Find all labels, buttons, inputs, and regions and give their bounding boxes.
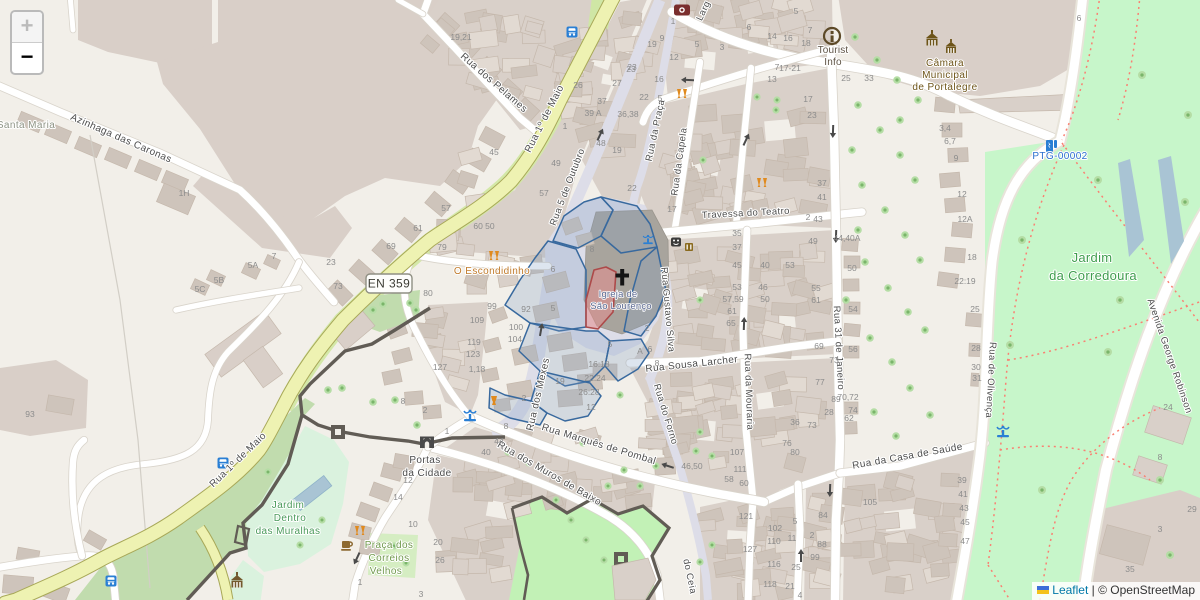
svg-text:12A: 12A	[957, 214, 972, 224]
svg-text:14: 14	[393, 492, 403, 502]
svg-text:111: 111	[734, 464, 747, 474]
svg-text:55: 55	[811, 283, 821, 293]
svg-text:20: 20	[433, 537, 443, 547]
svg-text:65: 65	[726, 318, 736, 328]
svg-text:Santa Maria: Santa Maria	[0, 120, 55, 131]
svg-text:23: 23	[326, 257, 336, 267]
svg-text:23: 23	[807, 110, 817, 120]
svg-text:Correios: Correios	[369, 553, 410, 564]
svg-text:48: 48	[596, 138, 606, 148]
svg-text:25: 25	[841, 73, 851, 83]
svg-text:Jardim: Jardim	[272, 500, 304, 511]
svg-text:109: 109	[470, 315, 484, 325]
svg-text:57: 57	[539, 188, 549, 198]
svg-text:24: 24	[1163, 402, 1173, 412]
svg-text:5: 5	[608, 339, 613, 349]
svg-text:19: 19	[555, 376, 565, 386]
svg-text:84: 84	[818, 510, 828, 520]
svg-text:5: 5	[793, 516, 798, 526]
svg-text:12: 12	[669, 52, 679, 62]
svg-text:49: 49	[808, 236, 818, 246]
svg-text:107: 107	[730, 447, 744, 457]
svg-text:17: 17	[803, 94, 813, 104]
svg-text:da Corredoura: da Corredoura	[1049, 268, 1137, 283]
svg-text:19: 19	[612, 145, 622, 155]
svg-text:54: 54	[848, 304, 858, 314]
svg-text:25: 25	[970, 304, 980, 314]
svg-text:46,50: 46,50	[681, 461, 703, 471]
svg-text:61: 61	[811, 295, 821, 305]
svg-text:121: 121	[739, 511, 753, 521]
svg-text:44,40A: 44,40A	[834, 233, 861, 243]
svg-text:53: 53	[785, 260, 795, 270]
svg-text:41: 41	[958, 489, 968, 499]
svg-text:50: 50	[847, 263, 857, 273]
svg-text:Câmara: Câmara	[926, 58, 964, 69]
svg-text:60 50: 60 50	[473, 221, 495, 231]
svg-text:37: 37	[732, 242, 742, 252]
svg-text:77: 77	[815, 377, 825, 387]
svg-text:73: 73	[807, 420, 817, 430]
svg-text:EN 359: EN 359	[368, 277, 410, 291]
svg-text:36: 36	[790, 417, 800, 427]
svg-text:18: 18	[967, 252, 977, 262]
svg-text:16:18: 16:18	[588, 359, 610, 369]
svg-text:5C: 5C	[195, 284, 206, 294]
svg-text:2: 2	[645, 323, 650, 333]
svg-text:80: 80	[423, 288, 433, 298]
svg-text:1: 1	[563, 121, 568, 131]
svg-text:127: 127	[433, 362, 447, 372]
svg-text:Portas: Portas	[409, 455, 440, 466]
svg-text:8: 8	[504, 421, 509, 431]
svg-text:45: 45	[732, 260, 742, 270]
svg-text:45: 45	[960, 517, 970, 527]
svg-text:39: 39	[957, 475, 967, 485]
svg-text:6: 6	[1077, 13, 1082, 23]
svg-text:5: 5	[695, 39, 700, 49]
svg-text:8: 8	[655, 358, 660, 368]
svg-text:99: 99	[487, 301, 497, 311]
svg-text:29: 29	[1187, 504, 1197, 514]
svg-text:19,21: 19,21	[450, 32, 472, 42]
svg-text:1,18: 1,18	[469, 364, 486, 374]
svg-text:A: A	[637, 346, 643, 356]
svg-text:26: 26	[435, 555, 445, 565]
svg-text:35: 35	[732, 228, 742, 238]
svg-text:7: 7	[775, 62, 780, 72]
svg-text:6,7: 6,7	[944, 136, 956, 146]
svg-text:9: 9	[660, 33, 665, 43]
svg-text:Tourist: Tourist	[818, 45, 849, 56]
svg-text:PTG-00002: PTG-00002	[1032, 151, 1087, 162]
svg-text:1: 1	[358, 577, 363, 587]
svg-text:58: 58	[724, 474, 734, 484]
svg-text:Info: Info	[824, 57, 842, 68]
svg-text:21: 21	[785, 581, 795, 591]
svg-text:46: 46	[758, 282, 768, 292]
svg-text:99: 99	[810, 552, 820, 562]
svg-text:6: 6	[747, 22, 752, 32]
svg-text:41: 41	[817, 192, 827, 202]
svg-text:45: 45	[489, 147, 499, 157]
svg-text:40: 40	[760, 260, 770, 270]
svg-text:22: 22	[639, 92, 649, 102]
svg-text:40: 40	[481, 447, 491, 457]
svg-text:Praça dos: Praça dos	[365, 540, 414, 551]
svg-text:22: 22	[627, 183, 637, 193]
svg-text:61: 61	[727, 306, 737, 316]
svg-text:50: 50	[760, 294, 770, 304]
svg-text:123: 123	[466, 349, 480, 359]
svg-text:118: 118	[763, 579, 777, 589]
svg-text:2: 2	[423, 405, 428, 415]
svg-text:5: 5	[658, 93, 663, 103]
svg-text:36,38: 36,38	[617, 109, 639, 119]
svg-text:8: 8	[1158, 452, 1163, 462]
svg-text:18: 18	[801, 38, 811, 48]
svg-text:104: 104	[508, 334, 522, 344]
svg-text:39 A: 39 A	[584, 108, 601, 118]
svg-text:16: 16	[783, 33, 793, 43]
svg-text:69: 69	[814, 341, 824, 351]
svg-text:57,59: 57,59	[722, 294, 744, 304]
svg-text:26:28: 26:28	[578, 387, 600, 397]
svg-text:37: 37	[817, 178, 827, 188]
svg-text:Jardim: Jardim	[1072, 250, 1113, 265]
svg-text:127: 127	[743, 544, 757, 554]
svg-text:102: 102	[768, 523, 782, 533]
svg-text:O Escondidinho: O Escondidinho	[454, 266, 530, 277]
svg-text:31: 31	[972, 373, 982, 383]
svg-text:3: 3	[1158, 524, 1163, 534]
svg-text:49: 49	[551, 158, 561, 168]
svg-text:44: 44	[494, 436, 504, 446]
svg-text:1H: 1H	[179, 188, 190, 198]
svg-text:116: 116	[767, 559, 781, 569]
svg-text:22:24: 22:24	[584, 373, 606, 383]
svg-text:61: 61	[413, 223, 423, 233]
svg-text:25: 25	[791, 562, 801, 572]
svg-text:12: 12	[403, 475, 413, 485]
svg-text:92: 92	[521, 304, 531, 314]
svg-text:69: 69	[386, 241, 396, 251]
svg-text:56: 56	[848, 344, 858, 354]
svg-text:27: 27	[612, 78, 622, 88]
svg-text:6: 6	[648, 344, 653, 354]
svg-text:16: 16	[654, 74, 664, 84]
svg-text:5A: 5A	[248, 260, 259, 270]
svg-text:8: 8	[590, 244, 595, 254]
svg-text:12: 12	[957, 189, 967, 199]
svg-text:2: 2	[806, 212, 811, 222]
svg-text:53: 53	[732, 282, 742, 292]
svg-text:5B: 5B	[214, 275, 225, 285]
svg-text:28: 28	[824, 407, 834, 417]
svg-text:17-21: 17-21	[779, 63, 801, 73]
svg-text:28: 28	[971, 343, 981, 353]
svg-text:100: 100	[509, 322, 523, 332]
svg-text:São Lourenço: São Lourenço	[590, 301, 652, 312]
svg-text:das Muralhas: das Muralhas	[256, 526, 321, 537]
svg-text:7: 7	[272, 251, 277, 261]
svg-text:9: 9	[954, 153, 959, 163]
svg-text:Dentro: Dentro	[274, 513, 306, 524]
svg-text:119: 119	[467, 337, 481, 347]
svg-text:74: 74	[848, 405, 858, 415]
svg-text:70,72: 70,72	[837, 392, 859, 402]
svg-text:73: 73	[829, 355, 839, 365]
svg-text:1: 1	[445, 426, 450, 436]
svg-text:26: 26	[573, 80, 583, 90]
svg-text:47: 47	[960, 536, 970, 546]
svg-text:3: 3	[419, 589, 424, 599]
svg-text:14: 14	[767, 31, 777, 41]
svg-text:de Portalegre: de Portalegre	[912, 82, 977, 93]
svg-text:88: 88	[817, 539, 827, 549]
svg-text:10: 10	[408, 519, 418, 529]
svg-text:3,4: 3,4	[939, 123, 951, 133]
svg-text:73: 73	[333, 281, 343, 291]
svg-text:19: 19	[647, 39, 657, 49]
svg-text:6: 6	[551, 264, 556, 274]
svg-text:5: 5	[551, 303, 556, 313]
svg-text:43: 43	[959, 503, 969, 513]
svg-text:2: 2	[810, 530, 815, 540]
svg-text:110: 110	[767, 536, 781, 546]
svg-text:12: 12	[586, 402, 596, 412]
svg-text:Igreja de: Igreja de	[599, 289, 638, 300]
svg-text:105: 105	[863, 497, 877, 507]
svg-text:3: 3	[720, 42, 725, 52]
svg-text:5: 5	[794, 6, 799, 16]
svg-text:33: 33	[864, 73, 874, 83]
svg-text:57: 57	[441, 203, 451, 213]
svg-text:Velhos: Velhos	[370, 566, 402, 577]
svg-text:4: 4	[798, 590, 803, 600]
svg-text:43: 43	[813, 214, 823, 224]
svg-text:1: 1	[671, 16, 676, 26]
svg-text:93: 93	[25, 409, 35, 419]
svg-text:23: 23	[626, 64, 636, 74]
svg-text:Municipal: Municipal	[922, 70, 968, 81]
svg-text:35: 35	[1125, 564, 1135, 574]
svg-text:2: 2	[522, 393, 527, 403]
svg-text:60: 60	[739, 478, 749, 488]
svg-text:8: 8	[401, 396, 406, 406]
svg-text:7: 7	[808, 25, 813, 35]
svg-text:30: 30	[971, 362, 981, 372]
svg-text:11: 11	[788, 533, 797, 543]
svg-text:22:19: 22:19	[954, 276, 976, 286]
svg-text:79: 79	[437, 242, 447, 252]
svg-text:17: 17	[667, 204, 677, 214]
svg-text:13: 13	[767, 74, 777, 84]
svg-text:80: 80	[790, 447, 800, 457]
svg-text:37: 37	[597, 96, 607, 106]
